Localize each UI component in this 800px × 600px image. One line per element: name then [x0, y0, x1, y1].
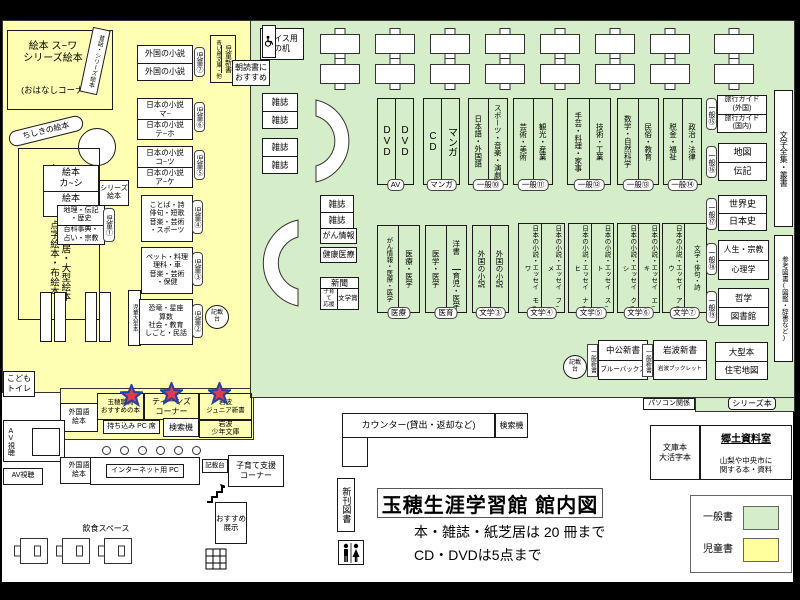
chuko-shinsho-shelf: 中公新書 ブルーバックス: [598, 340, 648, 380]
star-icon: [208, 382, 231, 405]
shelf-tag-bungaku7: 文学⑦: [669, 307, 700, 319]
shelf-col: 日本の小説・エッセイ フ~メ: [541, 224, 564, 312]
kids-toilet-label: こども トイレ: [3, 371, 35, 397]
magazine-label: 雑誌: [321, 212, 353, 229]
pc-related-tag: パソコン関係: [643, 398, 695, 410]
shelf-tag-bungaku3: 文学③: [475, 307, 506, 319]
children-jp-novels-shelf-ko: 日本の小説 コ~ツ 日本の小説 ア~ケ: [137, 146, 193, 188]
study-table: [320, 64, 360, 84]
series-books-tag: シリーズ本: [728, 397, 776, 410]
children-jp-novels-shelf-ma: 日本の小説 マ~ 日本の小説 テ~ホ: [137, 98, 193, 140]
shelf-col: DVD: [378, 99, 395, 184]
stairs-icon: [204, 482, 226, 504]
japan-history-label: 日本史: [719, 213, 766, 231]
shelf-col: マンガ: [441, 99, 459, 184]
shelf-tag-ippan14: 一般⑭: [667, 179, 698, 191]
series-picture-books-box: シリーズ 絵本: [99, 180, 129, 206]
study-table: [650, 34, 690, 54]
housing-map-label: 住宅地図: [716, 361, 767, 380]
shelf-col: スポーツ・音楽・演劇: [488, 99, 508, 184]
picture-books-su-wa-label: 絵本 ス~ワ シリーズ絵本: [10, 38, 96, 68]
tag-ippan15: 一般⑮: [706, 98, 717, 130]
shelf-col: 外国の小説: [490, 226, 508, 312]
health-medical-box: 健康医療: [320, 247, 357, 263]
iwanami-shinsho-label: 岩波新書: [654, 341, 706, 360]
shelf-col: CD: [424, 99, 441, 184]
shelf-jp-novels-4: 日本の小説・エッセイ モ~ワ 日本の小説・エッセイ フ~メ 文学④: [518, 223, 565, 313]
av-table: [32, 428, 60, 456]
foreign-picture-books-box: 外国語 絵本: [60, 403, 98, 432]
reference-books-shelf: 参考図書(図鑑・辞書など): [774, 235, 793, 362]
philosophy-library-shelf: 哲学 図書館: [718, 288, 769, 326]
map-title: 玉穂生涯学習館 館内図: [377, 488, 603, 518]
geography-history-label: 地理・伝記 ・歴史: [58, 206, 104, 225]
chair: [192, 446, 201, 455]
chair: [102, 446, 111, 455]
encyclopedia-label: 百科事典・ 占い・宗教: [58, 225, 104, 245]
childcare-support-corner: 子育て支援 コーナー: [228, 455, 284, 487]
shelf-col: 民俗・教育: [638, 99, 659, 184]
star-icon: [160, 382, 183, 405]
magazine-shelf: 雑誌 雑誌: [262, 93, 298, 129]
curved-shelf: [258, 216, 306, 310]
blank-shelf: [99, 292, 111, 342]
loan-limit-note: 本・雑誌・紙芝居は 20 冊まで: [414, 522, 605, 542]
curved-shelf: [308, 96, 364, 186]
philosophy-label: 哲学: [719, 289, 768, 307]
recommended-display-box: おすすめ 展示: [215, 502, 247, 544]
shelf-col: 日本の小説・エッセイ エ~キ: [638, 224, 659, 312]
travel-guide-shelf: 旅行ガイド (外国) 旅行ガイド (国内): [717, 95, 767, 133]
map-biography-shelf: 地図 伝記: [718, 143, 767, 181]
shelf-col: 芸術・美術: [514, 99, 533, 184]
shelf-tag-ippan13: 一般⑬: [623, 179, 654, 191]
tag-ippan-shinsho: 一般新書: [587, 344, 598, 377]
blank-shelf: [54, 292, 66, 342]
bluebacks-label: ブルーバックス: [599, 360, 647, 380]
study-table: [430, 34, 470, 54]
tag-jido-1: 児童①: [103, 208, 115, 242]
jp-novels-ma-label: 日本の小説 マ~: [138, 99, 192, 119]
iwanami-shinsho-shelf: 岩波新書 岩波ブックレット: [653, 340, 707, 380]
writing-stand-general: 記載 台: [563, 355, 587, 379]
life-psychology-shelf: 人生・宗教 心理学: [718, 240, 769, 280]
foreign-novels-label: 外国の小説: [138, 46, 192, 63]
magazine-shelf: 雑誌 雑誌: [320, 195, 354, 229]
study-table: [595, 34, 635, 54]
large-books-shelf: 大型本 住宅地図: [715, 342, 768, 380]
circulation-counter: カウンター(貸出・返却など): [342, 413, 495, 438]
shelf-tag-ippan11: 一般⑪: [518, 179, 549, 191]
shelf-medical-2: 医学・医学 洋書 育児・医学 医育: [425, 225, 467, 313]
shelf-col: 日本の小説・エッセイ ス~ト: [591, 224, 614, 312]
magazine-label: 雑誌: [263, 111, 297, 129]
language-poetry-shelf: ことば・詩 俳句・短歌 音楽・芸術 ・スポーツ: [141, 195, 193, 242]
study-table: [375, 64, 415, 84]
shelf-col: 日本の小説・エッセイ ナ~ヒ: [569, 224, 591, 312]
picture-books-ka-shi: 絵本 カ~シ: [44, 166, 98, 191]
legend-general-label: 一般書: [703, 512, 733, 524]
shelf-tag-manga: マンガ: [426, 179, 457, 191]
study-table: [714, 34, 754, 54]
shelf-col: 日本語・外国語: [469, 99, 488, 184]
internet-pc-label: インターネット用 PC: [106, 464, 184, 478]
newspaper-shelf: 新聞 子育て 応援 文学賞: [320, 277, 359, 310]
library-floor-map: 絵本 ス~ワ シリーズ絵本 (おはなしコーナー) 昔話・シリーズ絵本 ちしきの絵…: [0, 0, 800, 600]
cd-dvd-limit-note: CD・DVDは5点まで: [414, 545, 542, 565]
internet-pc-table: インターネット用 PC: [90, 457, 200, 485]
study-table: [540, 64, 580, 84]
local-history-room-subtitle: 山梨や中央市に 関する本・資料: [703, 453, 789, 478]
blank-shelf: [85, 292, 97, 342]
shelf-tag-bungaku5: 文学⑤: [576, 307, 607, 319]
shelf-dvd: DVD DVD AV: [377, 98, 414, 185]
star-icon: [120, 384, 143, 407]
eating-space-label: 飲食スペース: [76, 523, 136, 535]
large-books-label: 大型本: [716, 343, 767, 361]
shelf-jp-novels-6: 日本の小説・エッセイ ク~シ 日本の小説・エッセイ エ~キ 文学⑥: [617, 223, 660, 313]
shelf-col: 医療・医学: [398, 226, 419, 312]
chair: [174, 446, 183, 455]
shelf-medical-1: がん情報・医療・医学 医療・医学 医療: [377, 225, 420, 313]
shelf-tag-av: AV: [387, 179, 404, 191]
magazine-label: 雑誌: [263, 94, 297, 111]
new-books-shelf: 新刊図書: [337, 478, 355, 532]
jp-novels-teho-label: 日本の小説 テ~ホ: [138, 119, 192, 140]
travel-guide-foreign-label: 旅行ガイド (外国): [718, 96, 766, 114]
study-table: [485, 34, 525, 54]
travel-guide-domestic-label: 旅行ガイド (国内): [718, 114, 766, 133]
shelf-col: 観光・産業: [533, 99, 553, 184]
legend: 一般書 児童書: [690, 495, 792, 573]
shelf-art-tourism: 芸術・美術 観光・産業 一般⑪: [513, 98, 553, 185]
literature-collection-shelf: 文学全集・叢書: [774, 90, 793, 227]
shelf-col: がん情報・医療・医学: [378, 226, 398, 312]
display-shelf-icon: [205, 548, 227, 570]
foreign-novels-label: 外国の小説: [138, 63, 192, 81]
tag-ippan-shinsho: 一般新書: [642, 344, 653, 377]
study-table: [430, 64, 470, 84]
magazine-shelf: 雑誌 雑誌: [262, 138, 298, 174]
chair: [156, 446, 165, 455]
world-japan-history-shelf: 世界史 日本史: [718, 195, 767, 231]
shelf-col: 文学・俳句・詩: [684, 224, 706, 312]
shelf-col-western-books: 洋書: [452, 226, 461, 269]
shelf-col: 日本の小説・エッセイ ク~シ: [618, 224, 638, 312]
geography-biography-shelf: 地理・伝記 ・歴史 百科事典・ 占い・宗教: [57, 205, 105, 245]
iwanami-booklet-label: 岩波ブックレット: [654, 360, 706, 380]
tag-jido-4: 児童④: [192, 200, 203, 234]
world-history-label: 世界史: [719, 196, 766, 213]
wheelchair-desk: 車イス用 の机: [260, 28, 304, 60]
map-floor: 絵本 ス~ワ シリーズ絵本 (おはなしコーナー) 昔話・シリーズ絵本 ちしきの絵…: [2, 20, 793, 582]
shelf-tag-ippan10: 一般⑩: [473, 179, 504, 191]
search-terminal-children: 検索機: [163, 418, 199, 437]
study-table: [540, 34, 580, 54]
writing-stand-entrance: 記載台: [202, 459, 228, 473]
psychology-label: 心理学: [719, 260, 768, 280]
local-history-room: 郷土資料室 山梨や中央市に 関する本・資料: [700, 425, 792, 480]
shelf-foreign-novels: 外国の小説 外国の小説 文学③: [472, 225, 509, 313]
shelf-col: 政治・法律: [682, 99, 701, 184]
tag-ippan17: 一般⑰: [706, 198, 717, 230]
dining-table: [20, 538, 48, 564]
jp-novels-ake-label: 日本の小説 ア~ケ: [138, 167, 192, 188]
shelf-tag-iryo: 医療: [387, 307, 410, 319]
shelf-col: 日本の小説・エッセイ モ~ワ: [519, 224, 541, 312]
study-table: [320, 34, 360, 54]
legend-children-label: 児童書: [703, 544, 733, 556]
chair: [138, 446, 147, 455]
av-viewing-label-2: AV視聴: [3, 468, 43, 485]
shelf-col-childcare-medical: 育児・医学: [452, 269, 461, 313]
search-terminal-counter: 検索機: [495, 413, 528, 438]
morning-reading-box: 朝読書に おすすめ: [232, 60, 270, 86]
tag-ippan19: 一般⑲: [706, 291, 717, 323]
writing-stand-children: 記載 台: [205, 305, 229, 329]
tag-jido-5: 児童⑤: [194, 150, 205, 180]
aoitori-bunko-label: 青い鳥文庫・他: [215, 40, 222, 79]
shelf-cd-manga: CD マンガ マンガ: [423, 98, 460, 185]
iwanami-shonen-box: 岩波 少年文庫: [199, 420, 252, 438]
shelf-col: 数学・自然科学: [618, 99, 638, 184]
study-table: [375, 34, 415, 54]
av-viewing-label: AV視聴: [6, 423, 14, 461]
study-table: [595, 64, 635, 84]
shelf-col: 税金・福祉: [664, 99, 682, 184]
tag-jido-6: 児童⑥: [194, 102, 205, 132]
childcare-support-books-label: 子育て 応援: [321, 289, 337, 309]
restroom-icon: [338, 540, 364, 565]
newspaper-label: 新聞: [321, 278, 358, 288]
magazine-label: 雑誌: [321, 196, 353, 212]
pets-cooking-shelf: ペット・料理 理科・車 音楽・芸術 ・保健: [141, 247, 193, 294]
shelf-math-folklore: 数学・自然科学 民俗・教育 一般⑬: [617, 98, 659, 185]
shelf-tag-ippan12: 一般⑫: [574, 179, 605, 191]
children-shinsho-label: 児童新書: [221, 45, 231, 73]
shelf-col: 日本の小説・エッセイ ア~ウ: [663, 224, 684, 312]
wheelchair-icon: [262, 25, 276, 58]
legend-children-swatch: [743, 538, 779, 562]
jp-novels-kotsu-label: 日本の小説 コ~ツ: [138, 147, 192, 167]
chuko-shinsho-label: 中公新書: [599, 341, 647, 360]
cancer-info-box: がん情報: [320, 228, 357, 244]
shelf-jp-novels-7: 日本の小説・エッセイ ア~ウ 文学・俳句・詩 文学⑦: [662, 223, 707, 313]
paperback-large-print-room: 文庫本 大活字本: [650, 425, 700, 480]
shelf-tag-bungaku4: 文学④: [526, 307, 557, 319]
chair: [120, 446, 129, 455]
shelf-language-sports: 日本語・外国語 スポーツ・音楽・演劇 一般⑩: [468, 98, 508, 185]
tag-jido-7: 児童⑦: [194, 47, 205, 77]
library-science-label: 図書館: [719, 307, 768, 326]
dinosaur-science-shelf: 恐竜・星座 算数 社会・教育 しごと・民話: [139, 299, 193, 345]
shelf-col: 手芸・料理・家事: [568, 99, 589, 184]
study-table: [714, 64, 754, 84]
study-table: [650, 64, 690, 84]
tag-jido-3: 児童③: [192, 252, 203, 286]
shelf-col: DVD: [395, 99, 413, 184]
tag-ippan18: 一般⑱: [706, 243, 717, 275]
dining-table: [104, 538, 132, 564]
legend-general-swatch: [743, 506, 779, 530]
dining-table: [62, 538, 90, 564]
shelf-crafts-tech: 手芸・料理・家事 技術・工業 一般⑫: [567, 98, 611, 185]
byod-pc-seats-box: 持ち込み PC 席: [103, 420, 160, 434]
av-viewing-area: AV視聴: [3, 420, 65, 462]
literary-award-label: 文学賞: [337, 289, 358, 309]
children-foreign-novels-shelf: 外国の小説 外国の小説: [137, 45, 193, 81]
shelf-col: 技術・工業: [589, 99, 611, 184]
blank-shelf: [40, 292, 52, 342]
life-religion-label: 人生・宗教: [719, 241, 768, 260]
map-label: 地図: [719, 144, 766, 162]
magazine-label: 雑誌: [263, 139, 297, 156]
shelf-tax-politics: 税金・福祉 政治・法律 一般⑭: [663, 98, 702, 185]
shelf-jp-novels-5: 日本の小説・エッセイ ナ~ヒ 日本の小説・エッセイ ス~ト 文学⑤: [568, 223, 614, 313]
study-table: [485, 64, 525, 84]
tag-jido-2: 児童②: [192, 304, 203, 338]
biography-label: 伝記: [719, 162, 766, 181]
tag-ippan16: 一般⑯: [706, 146, 717, 178]
counter-return-wing: [342, 437, 368, 467]
shelf-col: 医学・医学: [426, 226, 446, 312]
magazine-label: 雑誌: [263, 156, 297, 174]
shelf-col: 外国の小説: [473, 226, 490, 312]
shelf-tag-iiku: 医育: [435, 307, 458, 319]
local-history-room-title: 郷土資料室: [703, 428, 789, 453]
shelf-tag-bungaku6: 文学⑥: [623, 307, 654, 319]
